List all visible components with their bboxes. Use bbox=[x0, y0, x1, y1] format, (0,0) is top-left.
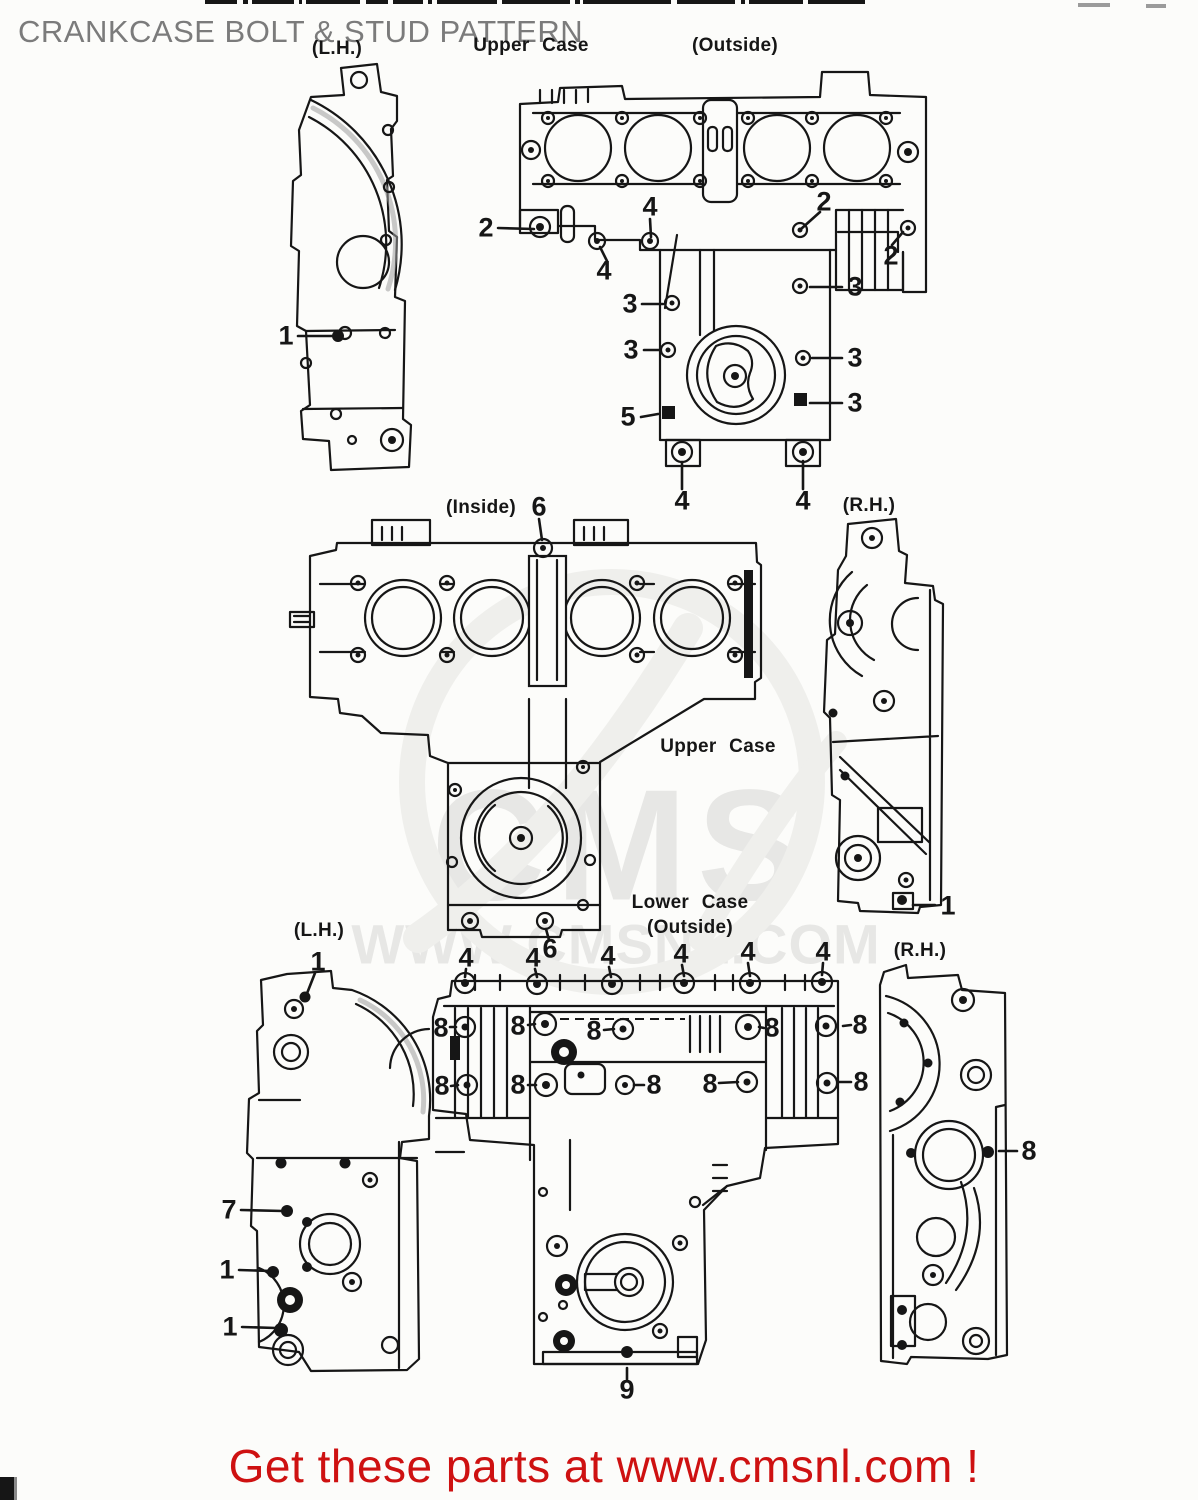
callout-number: 4 bbox=[525, 945, 540, 972]
callout-number: 8 bbox=[510, 1013, 525, 1040]
callout-number: 3 bbox=[847, 345, 862, 372]
callout-number: 8 bbox=[702, 1071, 717, 1098]
callout-number: 1 bbox=[278, 323, 293, 350]
callout-number: 8 bbox=[510, 1072, 525, 1099]
callout-number: 4 bbox=[815, 939, 830, 966]
callout-number: 2 bbox=[883, 243, 898, 270]
callout-number: 1 bbox=[219, 1257, 234, 1284]
callout-number: 6 bbox=[531, 494, 546, 521]
diagram-label: Lower Case bbox=[632, 892, 749, 914]
callout-number: 4 bbox=[674, 488, 689, 515]
callout-number: 7 bbox=[221, 1197, 236, 1224]
callout-number: 6 bbox=[542, 936, 557, 963]
callout-number: 8 bbox=[586, 1018, 601, 1045]
callout-number: 2 bbox=[478, 215, 493, 242]
callout-number: 1 bbox=[310, 949, 325, 976]
diagram-label: Upper Case bbox=[473, 35, 589, 57]
diagram-label: (Outside) bbox=[692, 35, 778, 57]
callout-number: 3 bbox=[847, 390, 862, 417]
diagram-label: (L.H.) bbox=[294, 920, 344, 942]
callout-number: 4 bbox=[596, 258, 611, 285]
diagram-label: (Inside) bbox=[446, 497, 516, 519]
diagram-label: (R.H.) bbox=[843, 495, 895, 517]
callout-number: 8 bbox=[434, 1073, 449, 1100]
callout-number: 8 bbox=[433, 1015, 448, 1042]
callout-number: 8 bbox=[646, 1072, 661, 1099]
callout-number: 4 bbox=[740, 939, 755, 966]
footer-promo-text: Get these parts at www.cmsnl.com ! bbox=[229, 1439, 980, 1493]
callout-number: 3 bbox=[847, 274, 862, 301]
diagram-label: (L.H.) bbox=[312, 38, 362, 60]
callout-number: 8 bbox=[853, 1069, 868, 1096]
callout-number: 4 bbox=[673, 941, 688, 968]
diagram-label: (R.H.) bbox=[894, 940, 946, 962]
callout-number: 1 bbox=[940, 893, 955, 920]
callout-number: 4 bbox=[600, 943, 615, 970]
callout-number: 3 bbox=[623, 337, 638, 364]
callout-number: 4 bbox=[642, 194, 657, 221]
callout-number: 3 bbox=[622, 291, 637, 318]
callout-number: 9 bbox=[619, 1377, 634, 1404]
text-layer: (L.H.)Upper Case(Outside)(Inside)(R.H.)U… bbox=[0, 0, 1198, 1500]
callout-number: 8 bbox=[1021, 1138, 1036, 1165]
diagram-label: (Outside) bbox=[647, 917, 733, 939]
callout-number: 8 bbox=[852, 1012, 867, 1039]
parts-diagram-page: CMS WWW.CMSNL.COM bbox=[0, 0, 1198, 1500]
scan-artifact-corner bbox=[0, 1477, 17, 1500]
callout-number: 4 bbox=[458, 945, 473, 972]
callout-number: 8 bbox=[764, 1015, 779, 1042]
callout-number: 5 bbox=[620, 404, 635, 431]
callout-number: 4 bbox=[795, 488, 810, 515]
diagram-label: Upper Case bbox=[660, 736, 776, 758]
callout-number: 1 bbox=[222, 1314, 237, 1341]
callout-number: 2 bbox=[816, 189, 831, 216]
